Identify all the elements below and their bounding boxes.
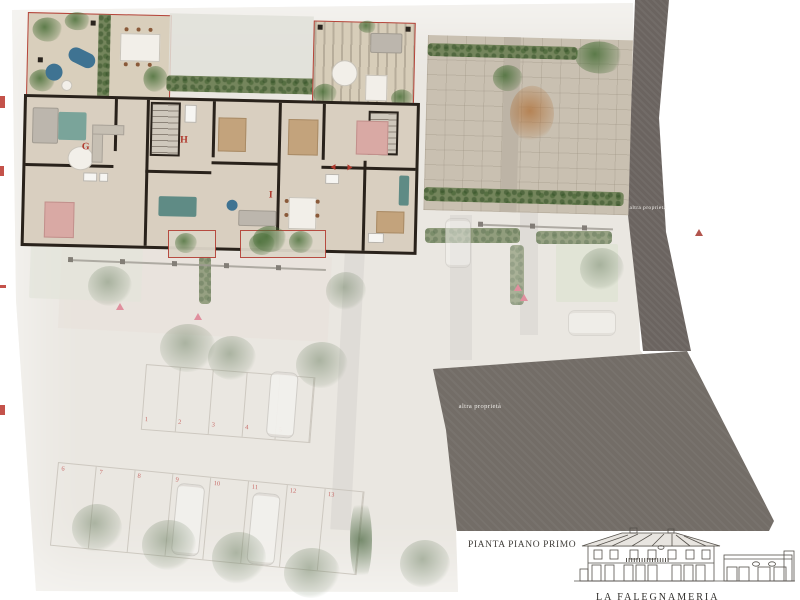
margin-red-tick	[0, 96, 5, 108]
project-title: LA FALEGNAMERIA	[596, 592, 719, 600]
tree	[88, 266, 132, 306]
tree	[580, 248, 624, 290]
tree	[212, 532, 266, 584]
interior-wall	[322, 104, 326, 160]
stall-number: 10	[213, 480, 220, 488]
tree	[326, 272, 366, 310]
interior-wall	[145, 170, 211, 174]
hedge-top	[427, 43, 577, 60]
bed	[288, 119, 319, 156]
round-table	[331, 60, 358, 87]
chair	[136, 28, 140, 32]
bench-teal	[399, 176, 410, 206]
pergola-post	[318, 25, 323, 30]
floor-plan-building: G H I	[20, 8, 417, 263]
margin-red-tick	[0, 166, 4, 176]
direction-marker	[520, 294, 528, 301]
round-lounge-chair	[45, 63, 62, 80]
sofa	[238, 210, 276, 227]
chair	[148, 28, 152, 32]
planter-pot	[91, 20, 96, 25]
neighbor-property-label-bottom: altra proprietà	[446, 403, 514, 410]
kitchen-counter	[92, 125, 124, 136]
stall-number: 12	[289, 487, 296, 495]
interior-wall	[362, 161, 367, 251]
bath-fixture	[83, 172, 97, 181]
chair	[284, 213, 288, 217]
site-plan-sheet: altra proprietà altra proprietà	[0, 0, 800, 600]
autumn-tree	[509, 85, 554, 142]
parking-stall: 2	[175, 368, 214, 434]
hedge-row	[536, 231, 612, 244]
stairwell	[150, 102, 181, 157]
terrace-left	[26, 12, 172, 99]
stall-number: 6	[61, 465, 65, 472]
hedge-mid	[166, 75, 316, 94]
red-arrow-left-icon	[330, 164, 335, 170]
chair	[315, 214, 319, 218]
sofa	[32, 107, 59, 144]
stall-number: 4	[245, 424, 249, 431]
stall-number: 3	[211, 421, 215, 428]
direction-marker	[514, 284, 522, 291]
margin-red-tick	[0, 405, 5, 415]
area-rug	[58, 112, 87, 141]
tree	[208, 336, 256, 380]
tree	[284, 548, 340, 598]
terrace-plant	[32, 17, 63, 42]
bed	[356, 121, 389, 156]
dining-table	[288, 197, 317, 230]
chair	[124, 27, 128, 31]
stall-number: 11	[251, 484, 258, 492]
terrace-plant	[143, 66, 168, 93]
car	[445, 218, 471, 268]
lounge-chair	[66, 45, 98, 71]
neighbor-courtyard	[168, 13, 313, 82]
interior-wall	[212, 161, 278, 165]
bed	[44, 201, 75, 238]
outdoor-dining-table	[120, 33, 161, 62]
bath-fixture	[325, 174, 339, 184]
interior-wall	[321, 166, 415, 171]
hedge-row	[425, 228, 520, 243]
unit-letter-G: G	[82, 141, 90, 152]
parking-stall: 3	[209, 370, 248, 436]
plan-title: PIANTA PIANO PRIMO	[468, 540, 576, 550]
pergola-post	[406, 27, 411, 32]
bath-fixture	[99, 173, 108, 182]
bath-fixture	[184, 105, 196, 123]
stall-number: 2	[178, 419, 182, 426]
planter-plant	[289, 231, 313, 253]
stall-number: 8	[137, 473, 141, 480]
car	[568, 310, 616, 336]
terrace-pergola	[312, 21, 416, 113]
direction-marker	[194, 313, 202, 320]
chair	[124, 62, 128, 66]
building-body: G H I	[21, 94, 420, 255]
chair	[136, 63, 140, 67]
side-table	[61, 80, 72, 91]
terrace-hedge-divider	[97, 15, 111, 97]
margin-red-tick	[0, 285, 6, 288]
terrace-plant	[359, 21, 377, 33]
planter-box	[168, 230, 216, 258]
direction-marker	[695, 229, 703, 236]
bath-fixture	[368, 233, 384, 243]
tree	[142, 520, 196, 570]
shrub	[253, 226, 287, 252]
bed	[218, 117, 247, 152]
shrub	[575, 41, 624, 74]
interior-wall	[212, 101, 216, 157]
cypress-tree	[350, 496, 372, 584]
tree	[296, 342, 348, 388]
chair	[285, 199, 289, 203]
parking-stall: 1	[142, 365, 181, 431]
building-elevation-drawing	[572, 527, 797, 587]
tree	[72, 504, 122, 552]
chair	[316, 200, 320, 204]
round-table-blue	[226, 200, 237, 211]
tree	[400, 540, 450, 588]
sofa-teal	[158, 196, 196, 217]
car	[266, 371, 299, 439]
unit-letter-I: I	[269, 190, 273, 201]
stall-number: 9	[175, 476, 179, 483]
stone-courtyard	[423, 35, 633, 215]
stall-number: 13	[328, 491, 335, 499]
terrace-plant	[65, 12, 91, 31]
unit-letter-H: H	[180, 135, 188, 146]
chair	[148, 63, 152, 67]
stall-number: 7	[99, 469, 103, 476]
hedge-bottom	[424, 187, 624, 206]
bed	[376, 211, 404, 234]
planter-plant	[175, 233, 197, 253]
lounge-table	[365, 75, 388, 101]
tree	[160, 324, 216, 372]
red-arrow-right-icon	[347, 164, 352, 170]
planter-pot	[38, 57, 43, 62]
stall-number: 1	[144, 416, 148, 423]
daybed	[370, 33, 402, 54]
